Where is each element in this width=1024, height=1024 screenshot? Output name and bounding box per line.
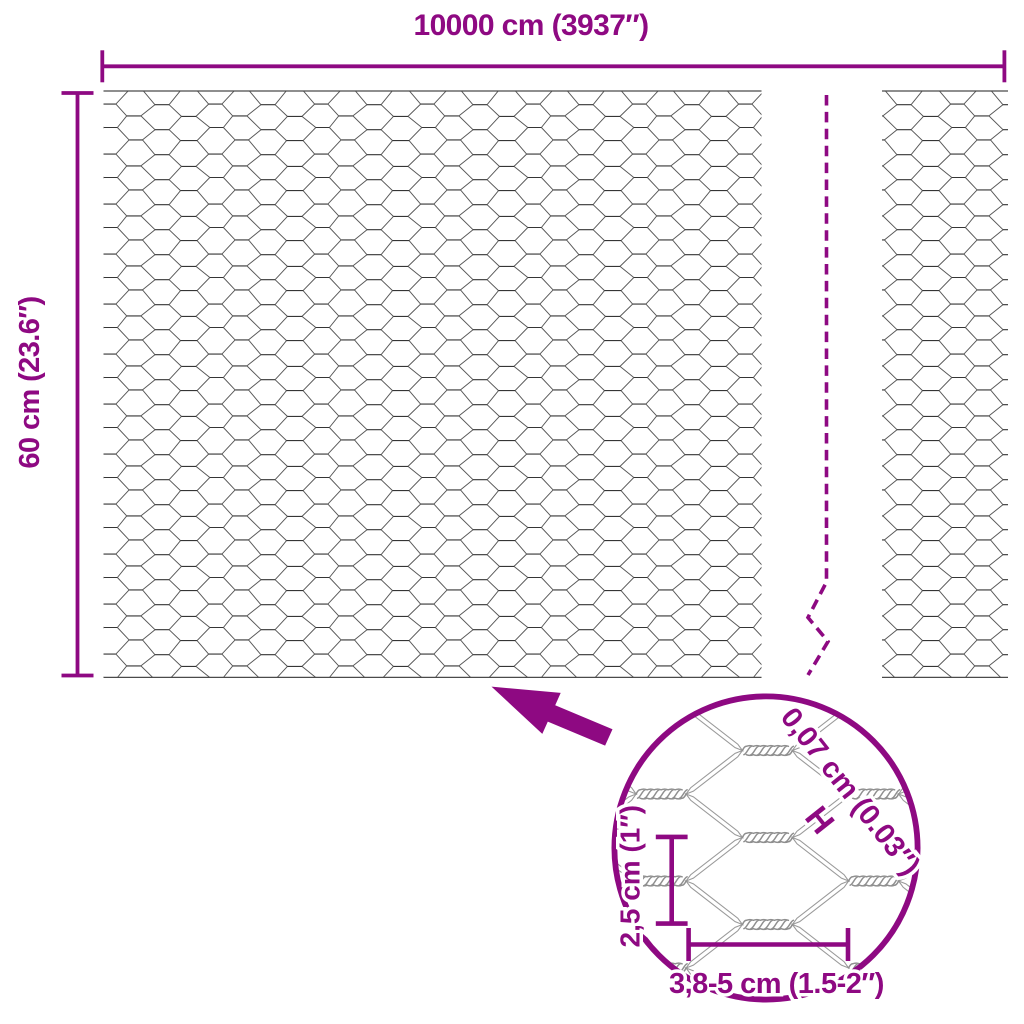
- svg-text:60 cm (23.6″): 60 cm (23.6″): [14, 296, 46, 468]
- svg-text:2,5 cm (1″): 2,5 cm (1″): [615, 805, 646, 948]
- svg-text:10000 cm (3937″): 10000 cm (3937″): [414, 9, 649, 42]
- svg-text:3,8-5 cm (1.5-2″): 3,8-5 cm (1.5-2″): [669, 968, 884, 1000]
